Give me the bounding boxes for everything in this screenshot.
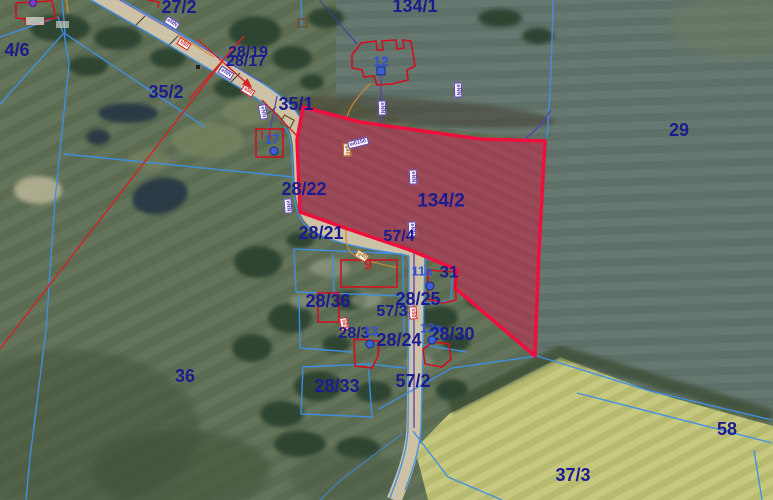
utility-badge: eNN [283, 198, 292, 214]
address-point-dot [270, 147, 279, 156]
address-point-dot [428, 336, 437, 345]
utility-badge: eNN [409, 169, 418, 184]
utility-badge: eNN [454, 82, 463, 97]
utility-badge: eNN [378, 100, 387, 115]
address-point-dot [426, 282, 435, 291]
utility-badge: s50 [408, 306, 417, 320]
map-viewport[interactable]: 4/627/2134/128/1928/171235/235/1172928/2… [0, 0, 773, 500]
aerial-map [0, 0, 773, 500]
utility-badge: eNN [408, 221, 417, 236]
address-point-dot [377, 67, 386, 76]
address-point-dot [366, 340, 375, 349]
